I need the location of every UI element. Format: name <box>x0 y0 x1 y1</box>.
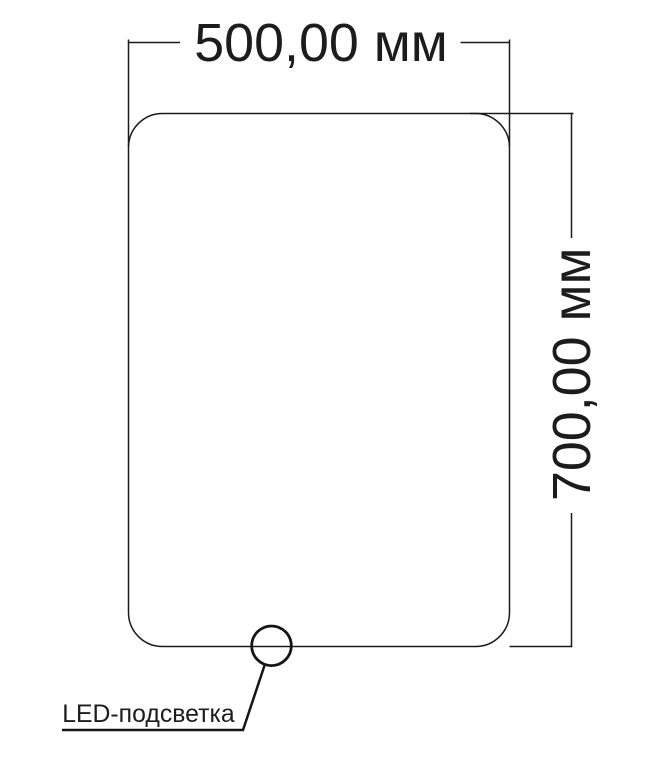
svg-text:500,00 мм: 500,00 мм <box>194 13 447 73</box>
svg-text:LED-подсветка: LED-подсветка <box>62 701 235 728</box>
svg-text:700,00 мм: 700,00 мм <box>542 248 602 501</box>
